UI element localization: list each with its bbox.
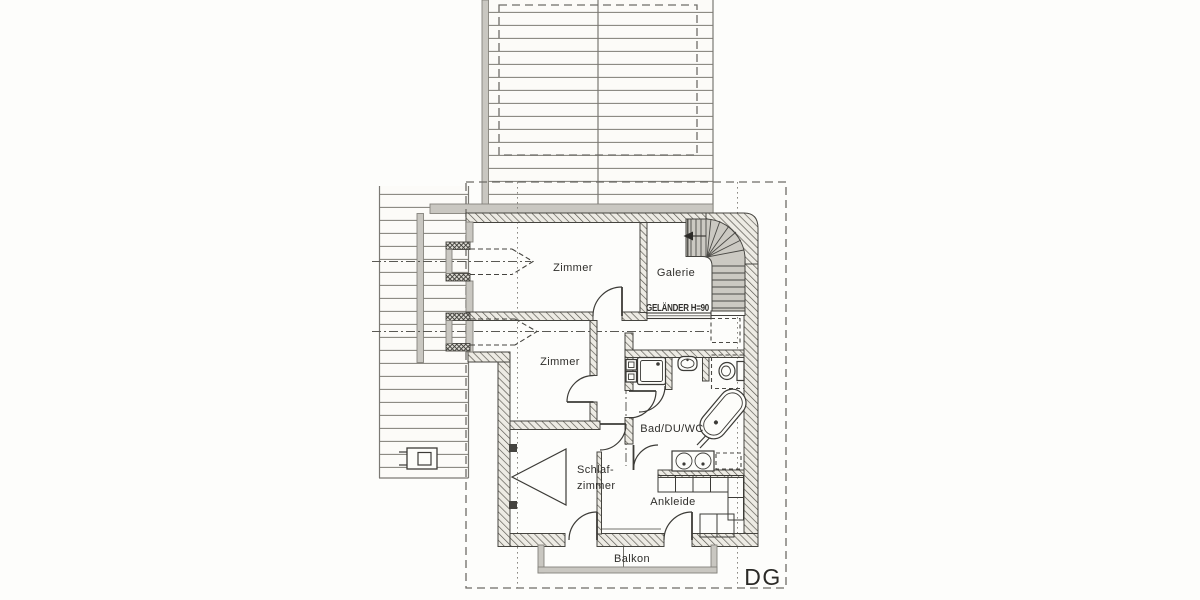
eaves-band-left: [417, 214, 424, 363]
wall-north: [466, 213, 713, 223]
room-label-schlafzimmer-1: Schlaf-: [577, 464, 614, 476]
wall-west-step: [468, 352, 510, 362]
wall-schlafzimmer-north: [510, 421, 600, 430]
roof-upper: [482, 0, 713, 213]
wall-zimmer2-east-lower: [590, 402, 597, 421]
wall-galerie-west: [640, 223, 647, 313]
room-label-ankleide: Ankleide: [650, 496, 695, 508]
dormer-2-glazing: [446, 321, 452, 344]
wall-zimmer2-east-upper: [590, 321, 597, 376]
wall-bad-west-lower: [625, 418, 633, 445]
wall-zimmer1-south: [466, 312, 593, 321]
room-label-zimmer-1: Zimmer: [553, 262, 593, 274]
railing-annotation: GELÄNDER H=90: [646, 301, 710, 314]
wall-west-lower: [498, 362, 510, 547]
wall-south-2: [597, 534, 664, 547]
wall-shower-stub: [666, 358, 673, 390]
room-label-bad: Bad/DU/WC: [640, 423, 704, 435]
floor-tag: DG: [744, 564, 782, 590]
floorplan-drawing: Zimmer Galerie Zimmer Bad/DU/WC Schlaf- …: [0, 0, 1200, 600]
wall-wc-stub: [703, 358, 710, 382]
floorplan-scan: Zimmer Galerie Zimmer Bad/DU/WC Schlaf- …: [0, 0, 1200, 600]
dormer-1-glazing: [446, 250, 452, 274]
room-label-schlafzimmer-2: zimmer: [577, 480, 615, 492]
room-label-galerie: Galerie: [657, 267, 695, 279]
washbasin-icon: [678, 357, 697, 371]
room-label-zimmer-2: Zimmer: [540, 356, 580, 368]
eaves-band-top: [430, 204, 713, 214]
wall-south-3: [692, 534, 758, 547]
shower-icon: [626, 358, 666, 385]
room-label-balkon: Balkon: [614, 553, 650, 565]
roof-upper-left-edge: [482, 0, 489, 213]
